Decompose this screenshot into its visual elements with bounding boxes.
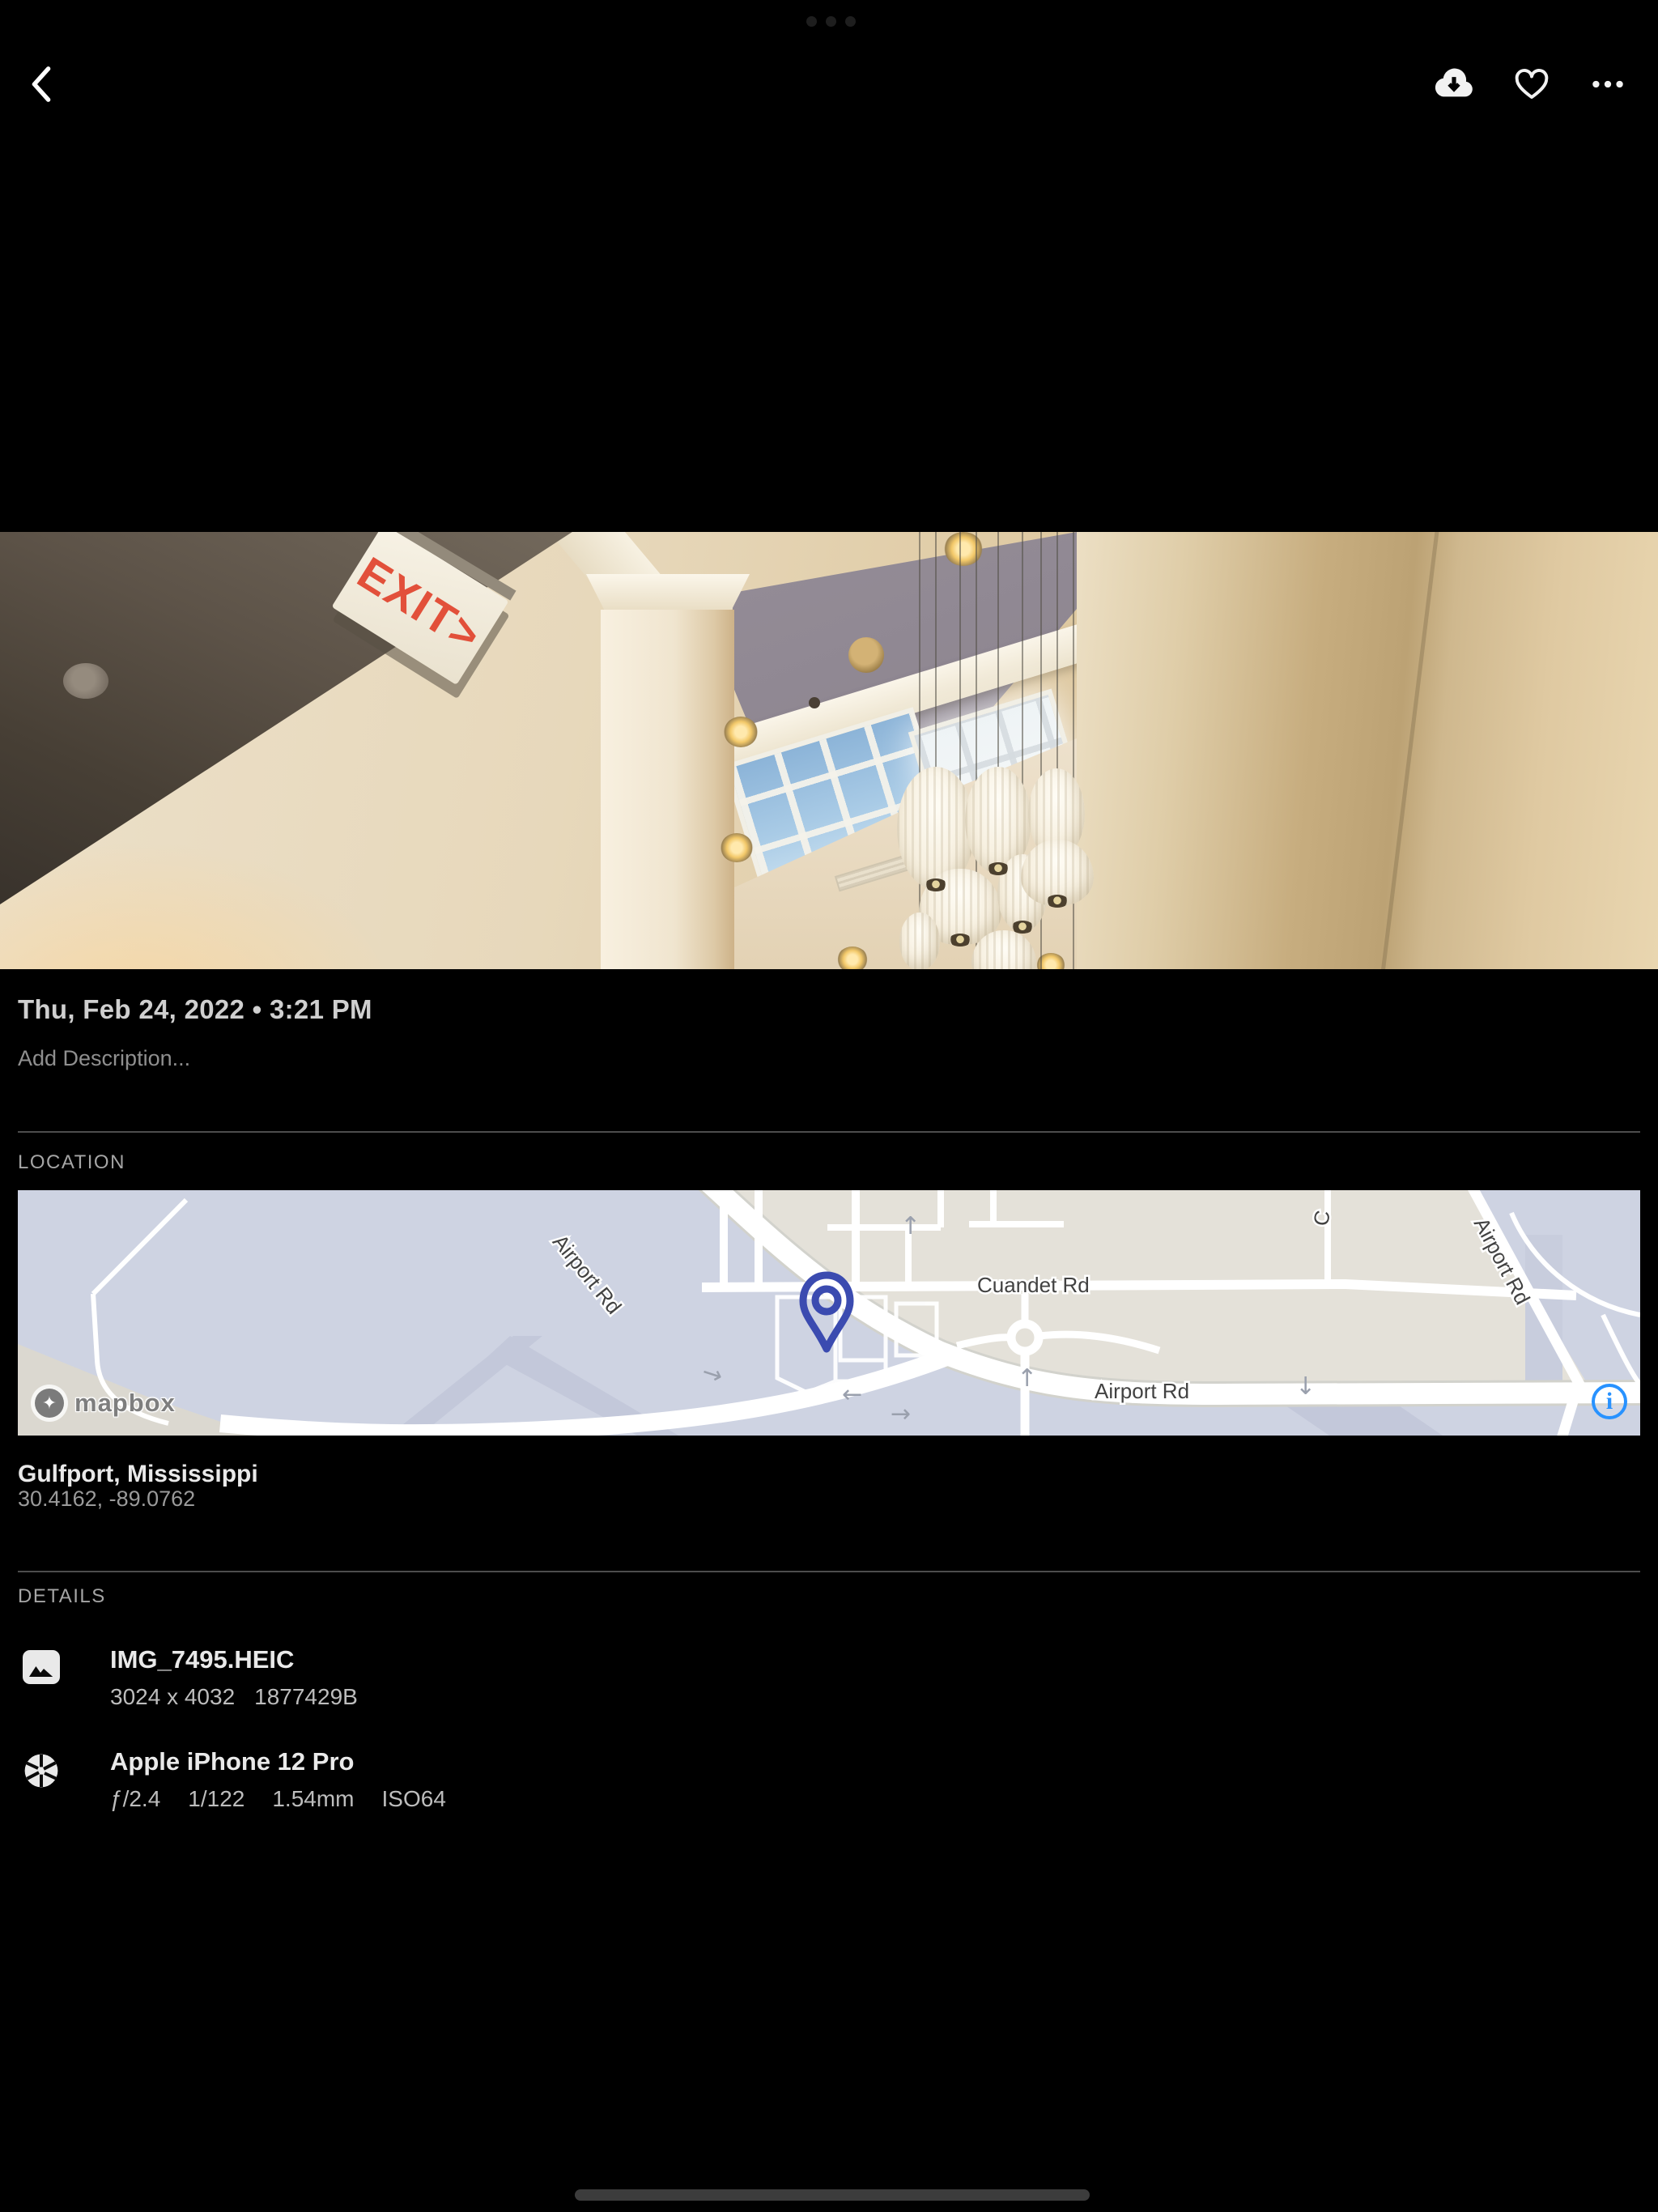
lamp-ring: [949, 934, 971, 946]
divider: [18, 1131, 1640, 1133]
photo-smoke-detector: [63, 663, 108, 699]
photo-ceiling-light: [724, 717, 758, 747]
photo-column-capital: [586, 574, 750, 613]
one-way-arrow-icon: ↑: [900, 1212, 920, 1240]
add-description-field[interactable]: Add Description...: [18, 1046, 190, 1071]
divider: [18, 1571, 1640, 1572]
file-meta: 3024 x 40321877429B: [110, 1684, 377, 1710]
heart-icon: [1511, 63, 1553, 109]
multitask-dots: [806, 16, 856, 27]
file-size: 1877429B: [254, 1684, 358, 1709]
photo-column: [601, 610, 734, 969]
chevron-left-icon: [23, 63, 61, 109]
file-detail-row: IMG_7495.HEIC 3024 x 40321877429B: [23, 1645, 377, 1710]
mapbox-attribution[interactable]: ✦ mapbox: [31, 1385, 176, 1422]
camera-shutter: 1/122: [188, 1786, 244, 1811]
info-icon: i: [1606, 1388, 1613, 1415]
photo-ceiling-light: [837, 946, 868, 969]
back-button[interactable]: [19, 63, 65, 108]
photo-date: Thu, Feb 24, 2022 • 3:21 PM: [18, 994, 372, 1025]
map-pin-icon: [797, 1270, 856, 1359]
location-section-label: LOCATION: [18, 1151, 125, 1174]
one-way-arrow-icon: →: [891, 1400, 911, 1428]
photo-ceiling-light: [721, 833, 753, 862]
map-info-button[interactable]: i: [1592, 1384, 1627, 1419]
camera-detail-row: Apple iPhone 12 Pro ƒ/2.41/1221.54mmISO6…: [23, 1747, 466, 1812]
ellipsis-icon: [1588, 64, 1628, 108]
file-name: IMG_7495.HEIC: [110, 1645, 377, 1674]
aperture-icon: [23, 1752, 60, 1812]
lamp-ring: [925, 878, 947, 891]
mapbox-logo-icon: ✦: [31, 1385, 68, 1422]
cloud-download-icon: [1431, 62, 1477, 111]
favorite-button[interactable]: [1509, 63, 1554, 108]
lamp-ring: [987, 862, 1010, 875]
camera-meta: ƒ/2.41/1221.54mmISO64: [110, 1786, 466, 1812]
details-section-label: DETAILS: [18, 1585, 106, 1608]
lamp-ring: [1046, 895, 1069, 908]
mapbox-wordmark: mapbox: [74, 1389, 176, 1418]
one-way-arrow-icon: ↓: [1295, 1372, 1316, 1401]
image-icon: [23, 1650, 60, 1710]
location-place: Gulfport, Mississippi: [18, 1461, 258, 1488]
home-indicator[interactable]: [575, 2189, 1090, 2201]
lamp-ring: [1011, 921, 1034, 934]
more-options-button[interactable]: [1585, 63, 1630, 108]
lamp-wire: [997, 532, 999, 767]
map-road-label: Airport Rd: [1095, 1379, 1189, 1403]
camera-focal-length: 1.54mm: [272, 1786, 354, 1811]
location-coordinates: 30.4162, -89.0762: [18, 1487, 195, 1512]
photo-speaker-disc: [848, 637, 884, 673]
camera-name: Apple iPhone 12 Pro: [110, 1747, 466, 1776]
one-way-arrow-icon: ←: [842, 1380, 862, 1409]
photo-detail-screen: EXIT> Thu, Feb 24, 2022 • 3:21 PM Add De…: [0, 0, 1658, 2212]
location-map[interactable]: → ← → ↑ ↑ ↓ Airport Rd Cuandet Rd Airpor…: [18, 1190, 1640, 1436]
photo-right-wall: [1077, 532, 1658, 969]
camera-iso: ISO64: [382, 1786, 446, 1811]
lamp-wire: [935, 532, 937, 768]
one-way-arrow-icon: ↑: [1017, 1364, 1037, 1393]
download-button[interactable]: [1431, 63, 1477, 108]
photo[interactable]: EXIT>: [0, 532, 1658, 969]
photo-sprinkler: [809, 697, 820, 708]
pendant-lamp: [899, 912, 940, 969]
camera-aperture: ƒ/2.4: [110, 1786, 160, 1811]
map-road-label: Cuandet Rd: [977, 1273, 1090, 1297]
file-dimensions: 3024 x 4032: [110, 1684, 235, 1709]
